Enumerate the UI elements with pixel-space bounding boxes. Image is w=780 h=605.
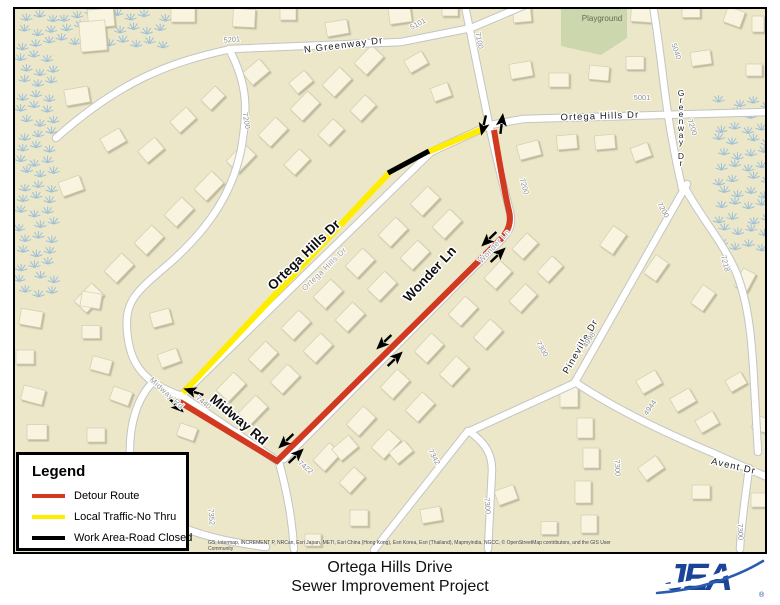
address-number-label: 7352	[206, 508, 216, 525]
marsh-tuft	[15, 224, 25, 231]
house	[281, 310, 311, 340]
house	[242, 59, 269, 85]
marsh-tuft	[716, 201, 728, 208]
marsh-tuft	[42, 206, 54, 213]
house	[516, 140, 541, 160]
marsh-tuft	[28, 159, 40, 166]
house	[404, 51, 428, 73]
house	[682, 9, 700, 18]
marsh-tuft	[114, 26, 126, 33]
house	[258, 117, 288, 147]
marsh-tuft	[743, 239, 755, 246]
marsh-tuft	[726, 212, 738, 219]
house	[638, 456, 665, 481]
street-label: Playground	[582, 14, 622, 23]
marsh-tuft	[125, 13, 137, 20]
house	[248, 341, 278, 371]
marsh-tuft	[30, 141, 42, 148]
marsh-tuft	[756, 244, 765, 251]
legend-items: Detour RouteLocal Traffic-No ThruWork Ar…	[32, 490, 186, 544]
house	[354, 45, 384, 75]
house	[473, 319, 502, 349]
marsh-tuft	[61, 24, 73, 31]
marsh-tuft	[761, 176, 765, 183]
marsh-tuft	[16, 43, 28, 50]
house	[746, 64, 762, 76]
legend-box: Legend Detour RouteLocal Traffic-No Thru…	[16, 452, 189, 551]
house	[104, 253, 134, 283]
house	[626, 57, 644, 70]
house	[284, 149, 310, 175]
marsh-tuft	[21, 165, 33, 172]
house	[484, 261, 512, 289]
house	[335, 302, 365, 332]
house	[670, 388, 697, 412]
house	[27, 425, 47, 440]
marsh-tuft	[71, 11, 83, 18]
marsh-tuft	[18, 24, 30, 31]
marsh-tuft	[48, 276, 60, 283]
marsh-tuft	[21, 115, 33, 122]
marsh-tuft	[715, 125, 727, 132]
marsh-tuft	[28, 101, 40, 108]
house	[442, 9, 458, 16]
house	[583, 448, 599, 468]
marsh-tuft	[141, 27, 153, 34]
house	[176, 423, 197, 441]
marsh-tuft	[48, 217, 60, 224]
legend-item-label: Work Area-Road Closed	[74, 532, 192, 544]
marsh-tuft	[761, 138, 765, 145]
marsh-tuft	[127, 22, 139, 29]
marsh-tuft	[17, 93, 29, 100]
road-road-7218	[684, 186, 758, 452]
street-label: Ortega Hills Dr	[560, 110, 639, 124]
marsh-tuft	[33, 290, 45, 297]
house	[100, 128, 127, 152]
marsh-tuft	[32, 79, 44, 86]
marsh-tuft	[732, 190, 744, 197]
house	[691, 285, 716, 312]
house	[577, 418, 593, 438]
house	[157, 348, 181, 368]
marsh-tuft	[30, 90, 42, 97]
house	[233, 9, 256, 28]
house	[448, 296, 477, 326]
marsh-tuft	[748, 171, 760, 178]
marsh-tuft	[46, 286, 58, 293]
house	[346, 406, 375, 436]
marsh-tuft	[46, 185, 58, 192]
house	[581, 515, 597, 533]
marsh-tuft	[755, 123, 765, 130]
marsh-tuft	[19, 235, 31, 242]
marsh-tuft	[58, 14, 70, 21]
marsh-tuft	[41, 55, 53, 62]
house	[692, 485, 710, 499]
address-number-label: 5040	[670, 42, 684, 61]
house	[380, 369, 409, 399]
house	[432, 209, 462, 239]
address-number-label: 7300	[482, 497, 492, 514]
house	[350, 95, 376, 121]
legend-swatch	[32, 515, 65, 519]
marsh-tuft	[32, 130, 44, 137]
road-road-7300-s	[470, 432, 492, 549]
map-attribution: GS, Intermap, INCREMENT P, NRCan, Esri J…	[208, 540, 620, 552]
road-greenway-dr	[653, 9, 682, 188]
house	[690, 50, 712, 67]
house	[345, 248, 375, 278]
marsh-tuft	[713, 216, 725, 223]
road-avent-west	[468, 383, 575, 432]
marsh-tuft	[44, 246, 56, 253]
house	[405, 392, 434, 422]
house	[339, 467, 365, 493]
house	[19, 308, 43, 328]
marsh-tuft	[17, 144, 29, 151]
marsh-tuft	[713, 95, 725, 102]
house	[630, 142, 652, 161]
marsh-tuft	[713, 178, 725, 185]
marsh-tuft	[34, 10, 46, 17]
marsh-tuft	[726, 137, 738, 144]
marsh-tuft	[48, 166, 60, 173]
house	[367, 271, 397, 301]
marsh-tuft	[47, 116, 59, 123]
address-number-label: 7300	[613, 459, 623, 476]
marsh-tuft	[34, 170, 46, 177]
house	[87, 428, 105, 442]
street-label: Greenway Dr	[677, 88, 685, 168]
legend-item: Detour Route	[32, 490, 186, 502]
house	[270, 364, 300, 394]
house	[751, 493, 765, 507]
house	[318, 119, 344, 145]
marsh-tuft	[19, 285, 31, 292]
arrow-tail	[286, 434, 293, 441]
marsh-tuft	[729, 122, 741, 129]
house	[439, 356, 468, 386]
marsh-tuft	[718, 148, 730, 155]
marsh-tuft	[154, 24, 166, 31]
marsh-tuft	[32, 231, 44, 238]
house	[64, 86, 90, 106]
jea-registered-mark: ®	[759, 591, 765, 599]
house	[509, 284, 537, 312]
marsh-tuft	[747, 134, 759, 141]
house	[512, 233, 538, 259]
marsh-tuft	[32, 181, 44, 188]
page: N Greenway DrOrtega Hills DrGreenway DrO…	[0, 0, 780, 605]
house	[280, 9, 296, 20]
marsh-tuft	[35, 271, 47, 278]
marsh-tuft	[56, 33, 68, 40]
marsh-tuft	[19, 184, 31, 191]
house	[80, 291, 102, 309]
marsh-tuft	[138, 10, 150, 17]
house	[556, 134, 577, 150]
house	[537, 256, 563, 282]
house	[313, 279, 343, 309]
legend-item-label: Local Traffic-No Thru	[74, 511, 176, 523]
marsh-tuft	[19, 133, 31, 140]
marsh-tuft	[28, 210, 40, 217]
house	[430, 82, 452, 101]
address-number-label: 4944	[641, 398, 658, 417]
marsh-tuft	[45, 25, 57, 32]
marsh-tuft	[32, 29, 44, 36]
marsh-tuft	[69, 38, 81, 45]
house	[138, 137, 164, 163]
house	[170, 107, 196, 133]
marsh-tuft	[745, 149, 757, 156]
arrow-tail	[491, 255, 498, 262]
jea-logo-text: JEA	[665, 557, 730, 599]
house	[79, 20, 108, 52]
marsh-tuft	[20, 14, 32, 21]
marsh-tuft	[130, 40, 142, 47]
marsh-tuft	[729, 197, 741, 204]
marsh-tuft	[748, 217, 760, 224]
marsh-tuft	[46, 236, 58, 243]
marsh-tuft	[159, 14, 171, 21]
marsh-tuft	[41, 105, 53, 112]
house	[149, 308, 172, 328]
marsh-tuft	[21, 64, 33, 71]
marsh-tuft	[756, 161, 765, 168]
house	[350, 510, 368, 526]
marsh-tuft	[15, 275, 25, 282]
house	[414, 333, 443, 363]
marsh-tuft	[734, 100, 746, 107]
marsh-tuft	[15, 155, 27, 162]
marsh-tuft	[731, 152, 743, 159]
house	[420, 506, 442, 523]
marsh-tuft	[30, 39, 42, 46]
marsh-tuft	[43, 95, 55, 102]
marsh-tuft	[761, 214, 765, 221]
marsh-tuft	[15, 104, 27, 111]
house	[378, 217, 408, 247]
house	[20, 385, 45, 405]
marsh-tuft	[34, 119, 46, 126]
house	[494, 485, 518, 506]
legend-item: Work Area-Road Closed	[32, 532, 186, 544]
marsh-tuft	[47, 15, 59, 22]
marsh-tuft	[15, 53, 26, 60]
house	[289, 70, 313, 94]
legend-item: Local Traffic-No Thru	[32, 511, 186, 523]
marsh-tuft	[29, 260, 41, 267]
marsh-tuft	[43, 36, 55, 43]
address-number-label: 7300	[736, 523, 746, 540]
marsh-tuft	[718, 185, 730, 192]
house	[134, 225, 164, 255]
address-number-label: 5201	[223, 34, 240, 44]
marsh-tuft	[745, 224, 757, 231]
marsh-tuft	[742, 127, 754, 134]
house	[400, 240, 430, 270]
house	[636, 370, 663, 394]
house	[725, 372, 747, 392]
marsh-tuft	[718, 223, 730, 230]
address-number-label: 7422	[296, 458, 315, 476]
house	[16, 350, 34, 364]
house	[723, 9, 745, 28]
marsh-tuft	[745, 187, 757, 194]
house	[90, 356, 113, 375]
house	[695, 411, 719, 433]
house	[194, 171, 224, 201]
marsh-tuft	[42, 156, 54, 163]
marsh-tuft	[15, 205, 27, 212]
house	[752, 16, 764, 32]
marsh-tuft	[729, 243, 741, 250]
marsh-tuft	[758, 191, 765, 198]
marsh-tuft	[756, 198, 765, 205]
address-number-label: 7200	[518, 177, 531, 196]
house	[325, 19, 349, 37]
marsh-tuft	[34, 220, 46, 227]
marsh-tuft	[30, 250, 42, 257]
legend-swatch	[32, 536, 65, 540]
address-number-label: 5001	[634, 93, 651, 102]
house	[588, 65, 609, 81]
marsh-tuft	[713, 133, 725, 140]
marsh-tuft	[761, 101, 765, 108]
marsh-tuft	[28, 50, 40, 57]
house	[541, 522, 557, 535]
marsh-tuft	[30, 191, 42, 198]
house	[109, 386, 133, 406]
marsh-tuft	[726, 175, 738, 182]
marsh-tuft	[19, 75, 31, 82]
marsh-tuft	[117, 35, 129, 42]
marsh-tuft	[43, 145, 55, 152]
legend-item-label: Detour Route	[74, 490, 139, 502]
marsh-tuft	[747, 96, 759, 103]
arrow-tail	[388, 359, 395, 366]
jea-logo: JEA ®	[653, 550, 771, 602]
house	[600, 226, 627, 255]
marsh-tuft	[742, 164, 754, 171]
legend-swatch	[32, 494, 65, 498]
marsh-tuft	[45, 126, 57, 133]
marsh-tuft	[15, 264, 27, 271]
house	[290, 91, 320, 121]
marsh-tuft	[17, 245, 29, 252]
marsh-tuft	[716, 163, 728, 170]
marsh-tuft	[42, 257, 54, 264]
marsh-tuft	[44, 196, 56, 203]
house	[594, 134, 615, 150]
marsh-tuft	[729, 160, 741, 167]
house	[549, 73, 569, 87]
house	[58, 175, 84, 197]
marsh-tuft	[742, 202, 754, 209]
house	[388, 9, 412, 24]
address-number-label: 7200	[686, 118, 700, 137]
road-n-greenway-dr	[56, 9, 523, 138]
marsh-tuft	[45, 76, 57, 83]
legend-title: Legend	[32, 463, 186, 480]
house	[303, 333, 333, 363]
house	[410, 186, 440, 216]
marsh-tuft	[157, 41, 169, 48]
house	[82, 326, 100, 339]
marsh-tuft	[34, 69, 46, 76]
house	[509, 61, 533, 80]
address-number-label: 7300	[534, 339, 550, 358]
house	[575, 481, 591, 503]
marsh-tuft	[144, 36, 156, 43]
marsh-tuft	[732, 228, 744, 235]
marsh-tuft	[758, 146, 765, 153]
arrow-tail	[384, 335, 391, 342]
house	[171, 9, 195, 22]
arrow-tail	[500, 124, 501, 134]
house	[164, 197, 194, 227]
marsh-tuft	[758, 229, 765, 236]
marsh-tuft	[47, 65, 59, 72]
marsh-tuft	[17, 195, 29, 202]
house	[201, 86, 225, 110]
house	[322, 67, 352, 97]
